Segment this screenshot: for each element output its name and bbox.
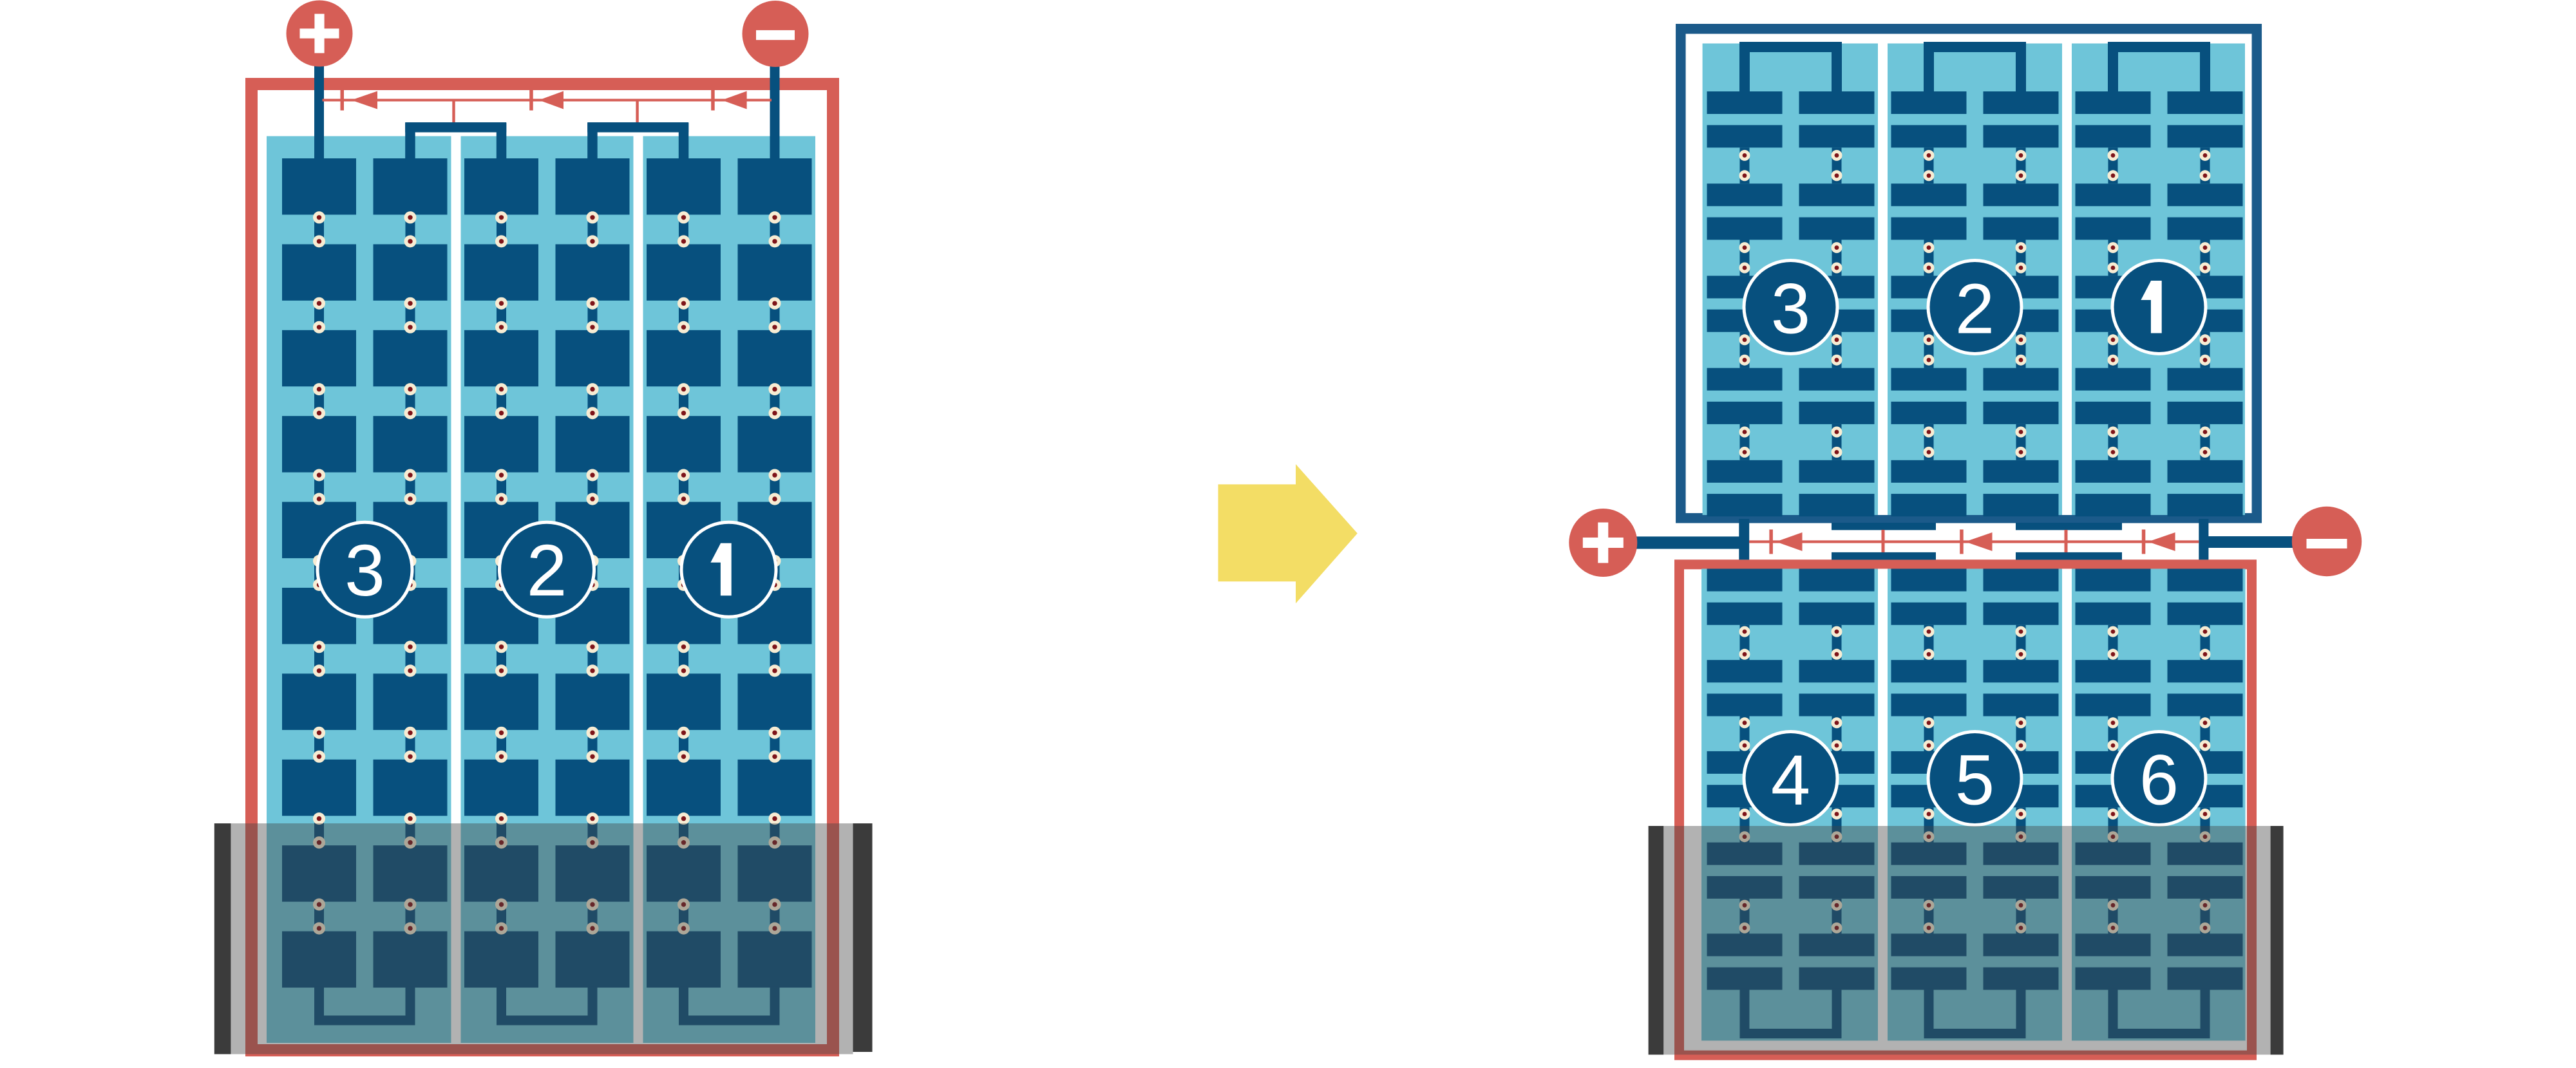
svg-text:2: 2 bbox=[527, 530, 567, 611]
svg-text:2: 2 bbox=[1955, 270, 1994, 349]
svg-text:3: 3 bbox=[345, 530, 385, 611]
svg-text:3: 3 bbox=[1771, 270, 1810, 349]
svg-text:6: 6 bbox=[2139, 741, 2179, 820]
svg-text:4: 4 bbox=[1771, 741, 1810, 820]
svg-text:5: 5 bbox=[1955, 741, 1994, 820]
